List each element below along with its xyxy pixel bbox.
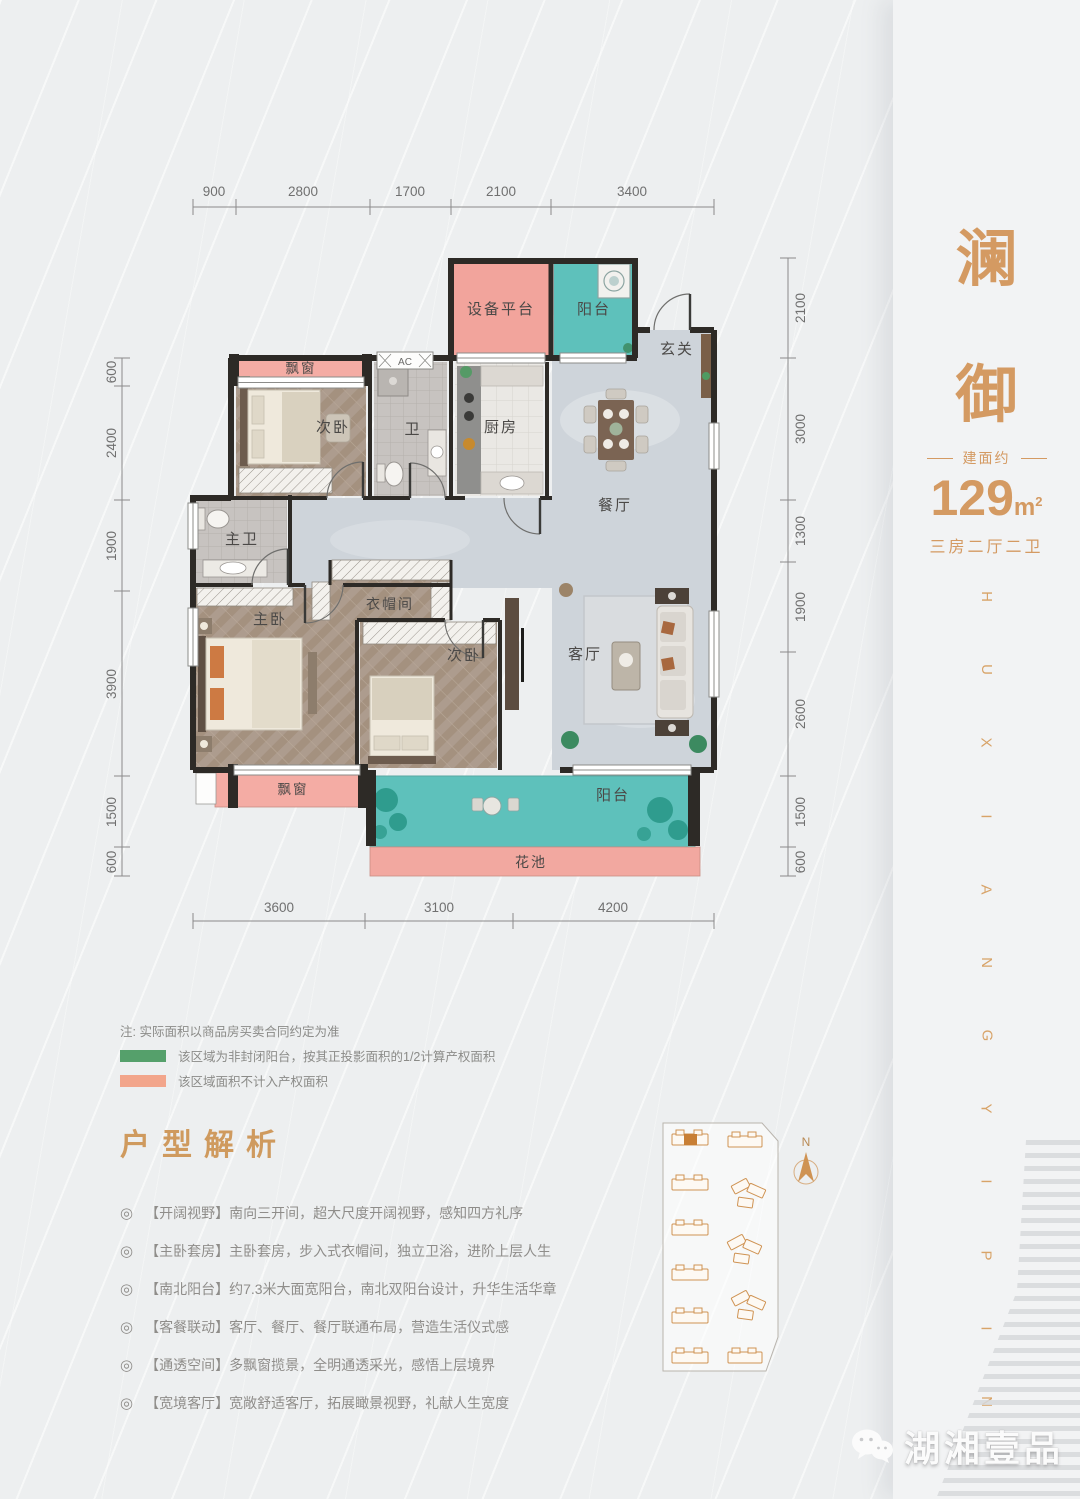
label-balcony-north: 阳台: [577, 301, 611, 318]
label-bay-north: 飘窗: [286, 360, 317, 376]
label-dining: 餐厅: [598, 497, 632, 514]
brand-watermark: 湖湘壹品: [850, 1420, 1064, 1472]
legend-swatch-salmon: [120, 1075, 166, 1087]
svg-text:3100: 3100: [424, 900, 454, 915]
ac-platform: AC: [377, 352, 433, 369]
label-bedroom2: 次卧: [316, 419, 350, 436]
svg-text:1900: 1900: [104, 531, 119, 561]
bullet-icon: ◎: [120, 1356, 133, 1374]
label-bath2: 卫: [404, 421, 421, 438]
poster-page: AC 设备平台 阳台 玄关 飘窗 次卧 卫 厨房 餐厅 主卫 衣帽间 主卧 次卧…: [0, 0, 1080, 1499]
svg-text:600: 600: [793, 851, 808, 874]
label-bay-south: 飘窗: [278, 781, 309, 797]
bullet-icon: ◎: [120, 1280, 133, 1298]
project-name-char: 澜: [955, 208, 1017, 298]
svg-text:1500: 1500: [104, 797, 119, 827]
feature-text: 【主卧套房】主卧套房，步入式衣帽间，独立卫浴，进阶上层人生: [145, 1241, 551, 1261]
svg-text:2100: 2100: [486, 184, 516, 199]
feature-text: 【南北阳台】约7.3米大面宽阳台，南北双阳台设计，升华生活华章: [145, 1279, 556, 1299]
svg-text:1500: 1500: [793, 797, 808, 827]
svg-text:4200: 4200: [598, 900, 628, 915]
svg-text:1300: 1300: [793, 516, 808, 546]
ac-label: AC: [398, 357, 412, 368]
project-name: 澜 御: [893, 208, 1080, 434]
svg-text:2800: 2800: [288, 184, 318, 199]
notes-block: 注: 实际面积以商品房买卖合同约定为准 该区域为非封闭阳台，按其正投影面积的1/…: [120, 1018, 495, 1093]
floor-plan: AC 设备平台 阳台 玄关 飘窗 次卧 卫 厨房 餐厅 主卫 衣帽间 主卧 次卧…: [95, 150, 815, 940]
bullet-icon: ◎: [120, 1242, 133, 1260]
bullet-icon: ◎: [120, 1318, 133, 1336]
legend-row-excluded: 该区域面积不计入产权面积: [120, 1068, 495, 1093]
wechat-icon: [850, 1428, 894, 1464]
feature-text: 【客餐联动】客厅、餐厅、餐厅联通布局，营造生活仪式感: [145, 1317, 509, 1337]
svg-text:3600: 3600: [264, 900, 294, 915]
label-living: 客厅: [568, 646, 602, 663]
project-name-char: 御: [955, 344, 1017, 434]
svg-text:3000: 3000: [793, 414, 808, 444]
legend-text: 该区域面积不计入产权面积: [178, 1071, 328, 1090]
feature-item: ◎ 【主卧套房】主卧套房，步入式衣帽间，独立卫浴，进阶上层人生: [120, 1232, 557, 1270]
legend-row-balcony: 该区域为非封闭阳台，按其正投影面积的1/2计算产权面积: [120, 1043, 495, 1068]
legend-text: 该区域为非封闭阳台，按其正投影面积的1/2计算产权面积: [178, 1046, 495, 1065]
svg-text:600: 600: [104, 851, 119, 874]
svg-text:3900: 3900: [104, 669, 119, 699]
layout-summary: 三房二厅二卫: [893, 533, 1080, 557]
svg-text:600: 600: [104, 361, 119, 384]
label-kitchen: 厨房: [484, 419, 518, 436]
svg-text:1900: 1900: [793, 592, 808, 622]
note-text: 注: 实际面积以商品房买卖合同约定为准: [120, 1021, 339, 1040]
highlighted-building: [684, 1134, 697, 1145]
compass-needle-icon: [798, 1152, 814, 1182]
label-bedroom3: 次卧: [447, 647, 481, 664]
area-value: 129m2: [893, 472, 1080, 525]
label-flower-bed: 花池: [515, 854, 547, 870]
brand-name: 湖湘壹品: [904, 1420, 1064, 1472]
note-disclaimer: 注: 实际面积以商品房买卖合同约定为准: [120, 1018, 495, 1043]
area-label: 建面约: [893, 448, 1080, 468]
label-equipment-platform: 设备平台: [467, 301, 535, 318]
features-title: 户型解析: [120, 1120, 288, 1164]
feature-text: 【宽境客厅】宽敞舒适客厅，拓展瞰景视野，礼献人生宽度: [145, 1393, 509, 1413]
svg-text:2400: 2400: [104, 428, 119, 458]
feature-item: ◎ 【通透空间】多飘窗揽景，全明通透采光，感悟上层境界: [120, 1346, 557, 1384]
bullet-icon: ◎: [120, 1204, 133, 1222]
features-list: ◎ 【开阔视野】南向三开间，超大尺度开阔视野，感知四方礼序 ◎ 【主卧套房】主卧…: [120, 1194, 557, 1422]
bullet-icon: ◎: [120, 1394, 133, 1412]
feature-text: 【开阔视野】南向三开间，超大尺度开阔视野，感知四方礼序: [145, 1203, 523, 1223]
svg-text:900: 900: [203, 184, 226, 199]
label-balcony-south: 阳台: [596, 787, 630, 804]
svg-text:3400: 3400: [617, 184, 647, 199]
compass-n-label: N: [802, 1135, 811, 1149]
feature-item: ◎ 【开阔视野】南向三开间，超大尺度开阔视野，感知四方礼序: [120, 1194, 557, 1232]
svg-text:2600: 2600: [793, 699, 808, 729]
label-foyer: 玄关: [660, 341, 694, 358]
legend-swatch-green: [120, 1050, 166, 1062]
label-master-bath: 主卫: [225, 531, 259, 548]
area-block: 建面约 129m2 三房二厅二卫: [893, 448, 1080, 557]
feature-item: ◎ 【客餐联动】客厅、餐厅、餐厅联通布局，营造生活仪式感: [120, 1308, 557, 1346]
site-plan-map: N: [648, 1108, 828, 1388]
compass: N: [794, 1135, 818, 1184]
feature-text: 【通透空间】多飘窗揽景，全明通透采光，感悟上层境界: [145, 1355, 495, 1375]
label-master-bedroom: 主卧: [253, 611, 287, 628]
feature-item: ◎ 【宽境客厅】宽敞舒适客厅，拓展瞰景视野，礼献人生宽度: [120, 1384, 557, 1422]
feature-item: ◎ 【南北阳台】约7.3米大面宽阳台，南北双阳台设计，升华生活华章: [120, 1270, 557, 1308]
svg-text:2100: 2100: [793, 293, 808, 323]
svg-text:1700: 1700: [395, 184, 425, 199]
label-closet: 衣帽间: [366, 596, 414, 612]
